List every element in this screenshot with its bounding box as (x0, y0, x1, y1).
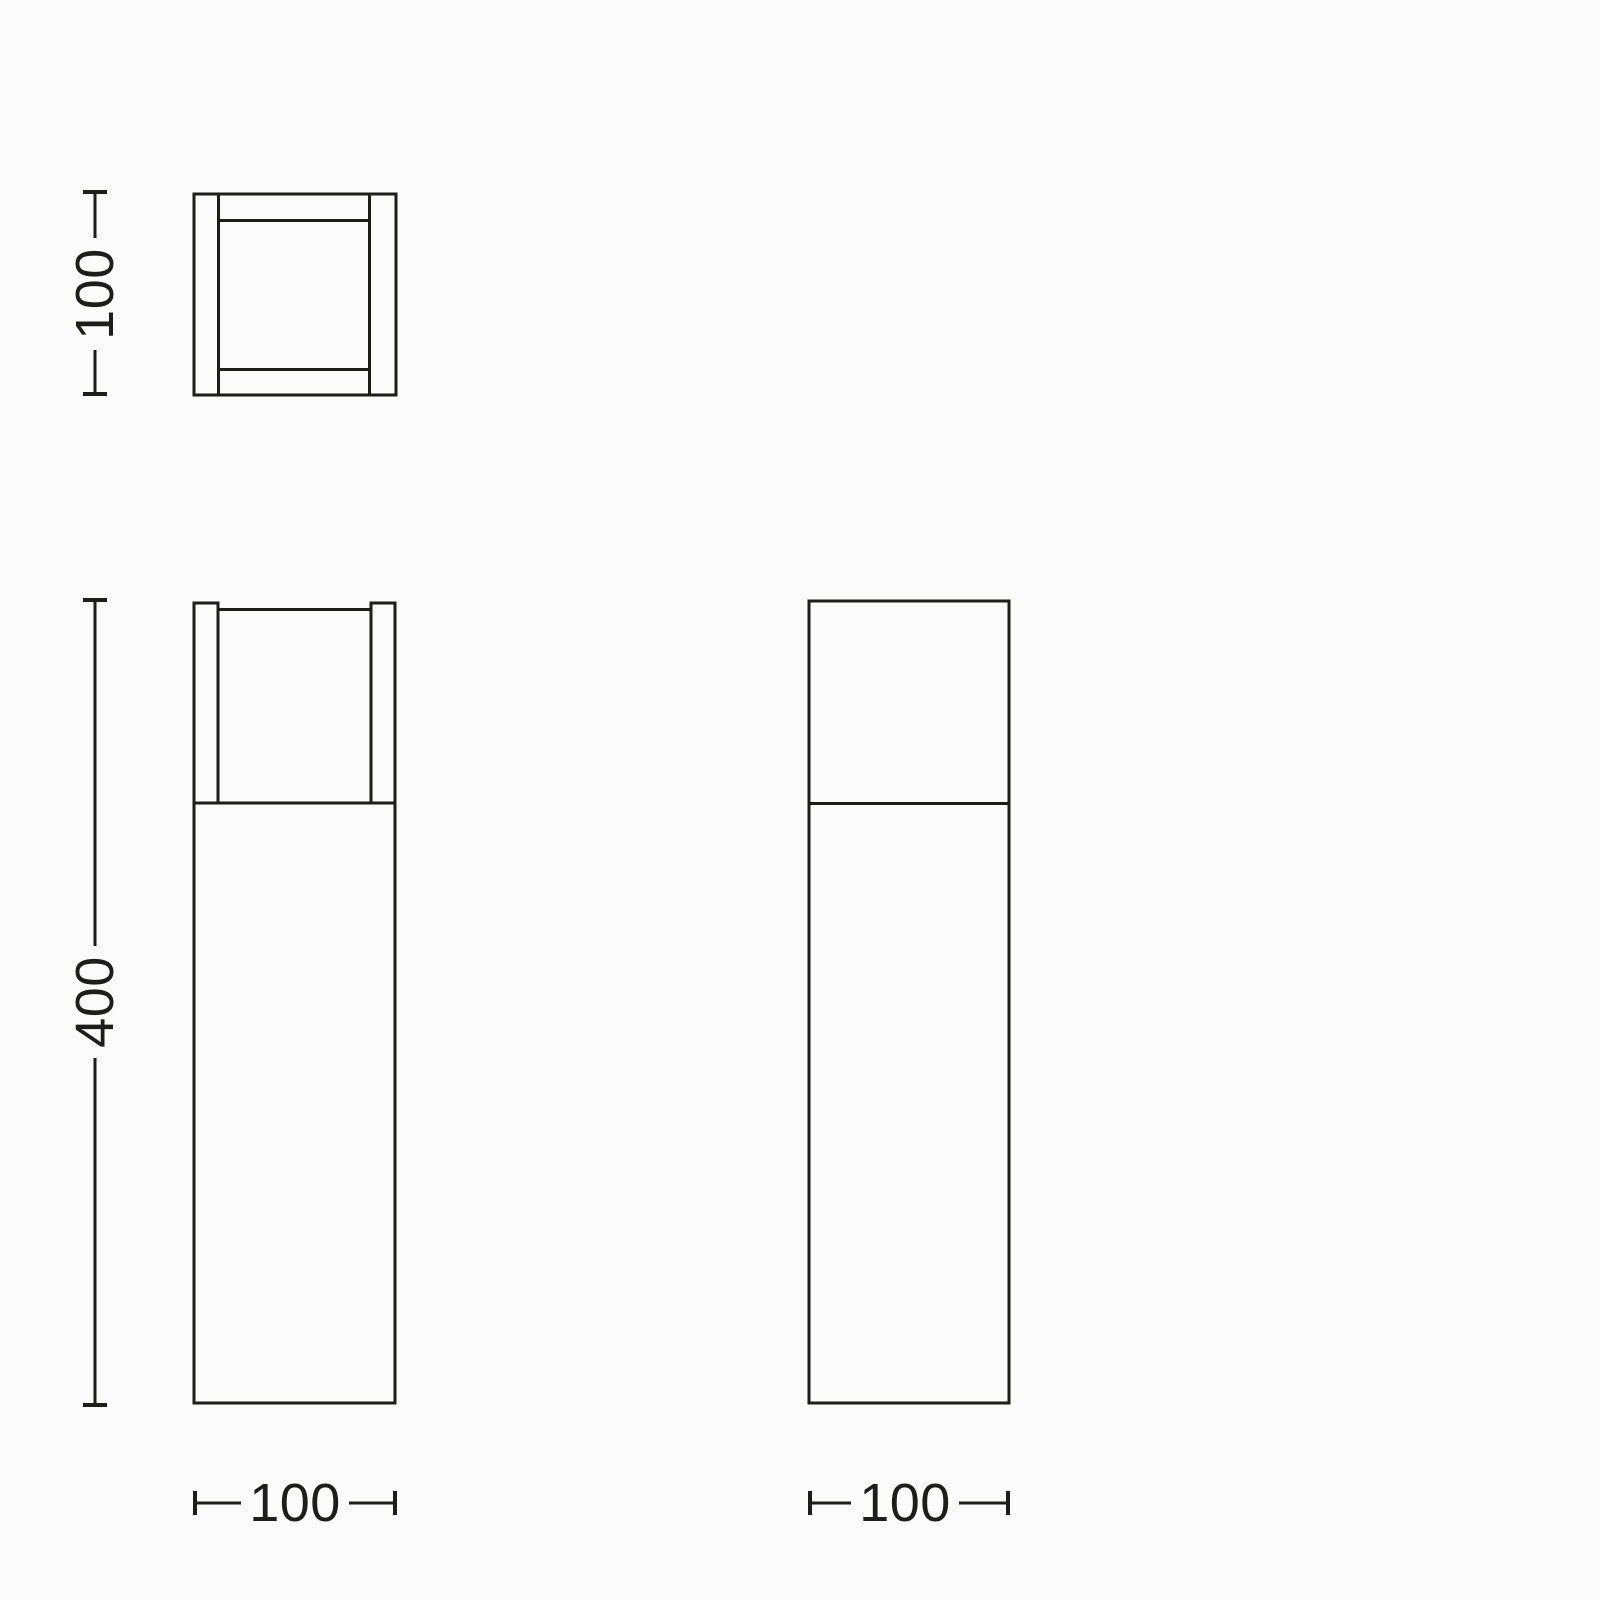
dimension-label: 400 (65, 956, 125, 1048)
side-view-outline (809, 601, 1009, 1403)
side-view (809, 601, 1009, 1403)
front-view (194, 603, 395, 1403)
dimension-label: 100 (65, 248, 125, 340)
dimension-drawing: 100 400 100 (0, 0, 1600, 1600)
top-view (194, 194, 396, 395)
front-view-height-dimension: 400 (64, 600, 126, 1405)
top-view-outer-square (194, 194, 396, 395)
dimension-label: 100 (249, 1473, 341, 1533)
front-view-left-post (194, 603, 218, 803)
front-view-right-post (371, 603, 395, 803)
front-view-width-dimension: 100 (195, 1473, 395, 1533)
dimension-label: 100 (859, 1473, 951, 1533)
side-view-width-dimension: 100 (810, 1473, 1008, 1533)
front-view-post-body (194, 803, 395, 1403)
drawing-canvas: 100 400 100 (0, 0, 1600, 1600)
top-view-depth-dimension: 100 (64, 192, 126, 394)
